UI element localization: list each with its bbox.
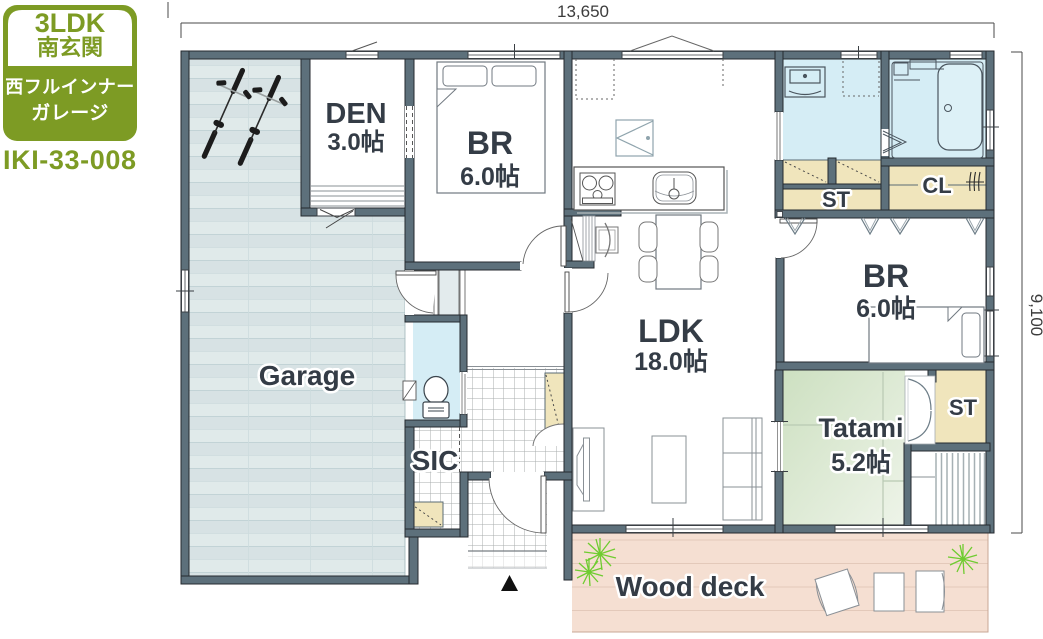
svg-text:6.0帖: 6.0帖 xyxy=(856,295,916,323)
svg-text:Tatami: Tatami xyxy=(818,413,903,443)
svg-text:3LDK: 3LDK xyxy=(35,8,106,38)
svg-text:9,100: 9,100 xyxy=(1027,294,1043,337)
svg-text:SIC: SIC xyxy=(412,445,459,476)
svg-text:ガレージ: ガレージ xyxy=(31,102,109,124)
svg-text:DEN: DEN xyxy=(325,98,386,130)
svg-text:ST: ST xyxy=(822,187,851,212)
svg-text:18.0帖: 18.0帖 xyxy=(634,348,708,376)
svg-text:BR: BR xyxy=(863,258,909,294)
svg-text:IKI-33-008: IKI-33-008 xyxy=(3,145,137,175)
svg-text:LDK: LDK xyxy=(638,313,704,349)
svg-text:Garage: Garage xyxy=(259,360,356,391)
svg-text:CL: CL xyxy=(922,173,951,198)
svg-text:5.2帖: 5.2帖 xyxy=(831,449,891,477)
svg-text:西フルインナー: 西フルインナー xyxy=(5,77,135,97)
svg-text:6.0帖: 6.0帖 xyxy=(460,163,520,191)
svg-text:3.0帖: 3.0帖 xyxy=(327,129,384,156)
svg-text:Wood deck: Wood deck xyxy=(616,571,765,602)
svg-text:南玄関: 南玄関 xyxy=(37,35,103,60)
svg-text:BR: BR xyxy=(467,125,513,161)
svg-text:13,650: 13,650 xyxy=(557,2,609,21)
svg-text:ST: ST xyxy=(949,395,978,420)
